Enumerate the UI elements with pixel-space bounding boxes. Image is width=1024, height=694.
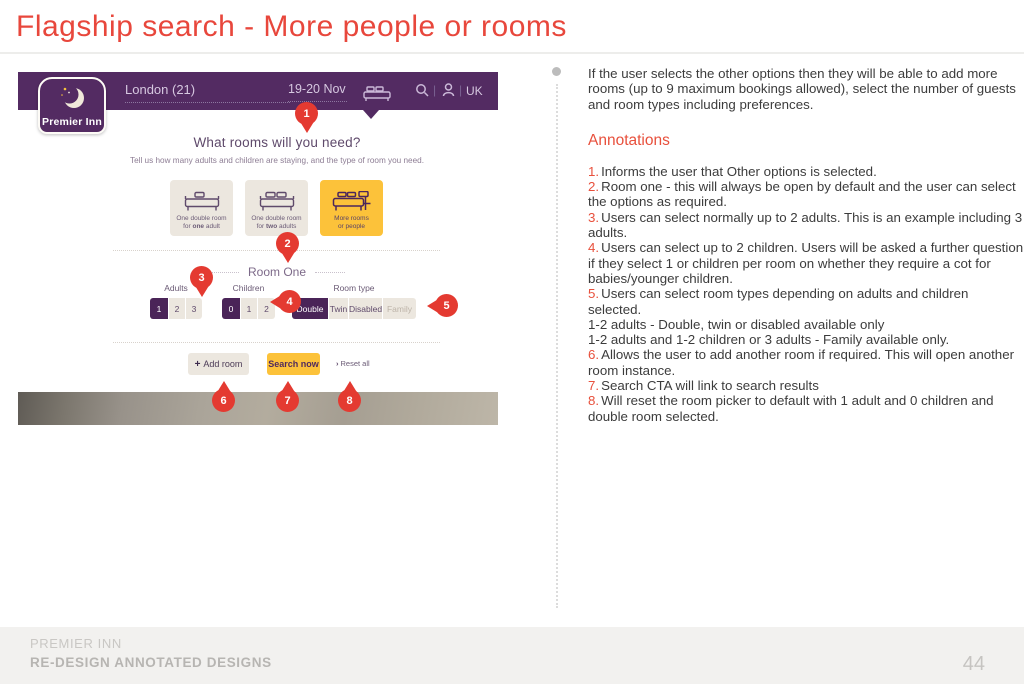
annotation-pin-1: 1 (295, 102, 318, 125)
footer-brand: PREMIER INN (30, 636, 122, 651)
intro-paragraph: If the user selects the other options th… (588, 66, 1024, 112)
annotation-item: 3.Users can select normally up to 2 adul… (588, 210, 1024, 241)
annotation-number: 4. (588, 240, 599, 255)
adults-option-2[interactable]: 2 (169, 298, 185, 319)
card-label: One double room for two adults (245, 215, 308, 231)
header-notch (363, 110, 379, 119)
section-divider (113, 342, 440, 343)
account-button[interactable] (442, 83, 455, 97)
annotation-item: 6.Allows the user to add another room if… (588, 347, 1024, 378)
annotation-item: 1-2 adults and 1-2 children or 3 adults … (588, 332, 1024, 347)
logo-wordmark: Premier Inn (40, 116, 104, 128)
country-selector[interactable]: UK (466, 84, 483, 98)
premier-inn-logo[interactable]: Premier Inn (38, 77, 106, 134)
annotation-item: 7.Search CTA will link to search results (588, 378, 1024, 393)
header-divider: | (459, 83, 462, 97)
title-divider (0, 52, 1024, 54)
room-type-label: Room type (292, 283, 416, 293)
single-bed-icon (170, 191, 233, 212)
annotation-item: 1-2 adults - Double, twin or disabled av… (588, 317, 1024, 332)
annotation-number: 2. (588, 179, 599, 194)
room-one-header: Room One (56, 265, 498, 279)
annotations-heading: Annotations (588, 132, 1024, 150)
annotation-number: 6. (588, 347, 599, 362)
section-divider (113, 250, 440, 251)
hero-photo-strip (18, 392, 498, 425)
annotation-pin-6: 6 (212, 389, 235, 412)
annotation-number: 8. (588, 393, 599, 408)
annotation-item: 5.Users can select room types depending … (588, 286, 1024, 317)
bullet-icon (552, 67, 561, 76)
add-room-button[interactable]: +Add room (188, 353, 249, 375)
annotation-number: 7. (588, 378, 599, 393)
annotation-item: 4.Users can select up to 2 children. Use… (588, 240, 1024, 286)
annotations-panel: If the user selects the other options th… (588, 66, 1024, 424)
mockup-subheading: Tell us how many adults and children are… (56, 156, 498, 165)
room-type-disabled[interactable]: Disabled (349, 298, 382, 319)
footer-subtitle: RE-DESIGN ANNOTATED DESIGNS (30, 655, 272, 670)
annotation-number: 3. (588, 210, 599, 225)
room-type-family[interactable]: Family (383, 298, 416, 319)
annotation-pin-5: 5 (435, 294, 458, 317)
annotation-number: 5. (588, 286, 599, 301)
plus-icon: + (195, 359, 201, 370)
double-bed-icon (245, 191, 308, 212)
annotation-item: 8.Will reset the room picker to default … (588, 393, 1024, 424)
search-icon (415, 83, 429, 97)
annotation-pin-8: 8 (338, 389, 361, 412)
page-title: Flagship search - More people or rooms (16, 10, 567, 44)
vertical-dotted-divider (556, 84, 558, 608)
children-option-0[interactable]: 0 (222, 298, 240, 319)
room-type-selector: Room type Double Twin Disabled Family (292, 283, 416, 319)
multi-bed-icon (320, 191, 383, 212)
room-type-twin[interactable]: Twin (329, 298, 348, 319)
annotation-pin-7: 7 (276, 389, 299, 412)
dash-ornament (315, 272, 345, 273)
annotated-design-page: { "page": { "title": "Flagship search - … (0, 0, 1024, 694)
location-field[interactable]: London (21) (125, 82, 290, 103)
annotation-item: 2.Room one - this will always be open by… (588, 179, 1024, 210)
children-selector: Children 0 1 2 (222, 283, 275, 319)
slide-footer: PREMIER INN RE-DESIGN ANNOTATED DESIGNS … (0, 627, 1024, 684)
card-label: One double room for one adult (170, 215, 233, 231)
dates-field[interactable]: 19-20 Nov (288, 82, 347, 102)
flagship-search-mockup: London (21) 19-20 Nov | (18, 72, 498, 425)
search-now-button[interactable]: Search now (267, 353, 320, 375)
mockup-heading: What rooms will you need? (56, 135, 498, 150)
rooms-menu-button[interactable] (360, 82, 394, 104)
adults-option-3[interactable]: 3 (186, 298, 202, 319)
reset-all-link[interactable]: ›Reset all (336, 359, 370, 368)
person-icon (442, 83, 455, 97)
dash-ornament (209, 272, 239, 273)
annotation-pin-4: 4 (278, 290, 301, 313)
children-option-1[interactable]: 1 (241, 298, 257, 319)
children-label: Children (222, 283, 275, 293)
page-number: 44 (963, 653, 985, 676)
annotation-number: 1. (588, 164, 599, 179)
card-label: More rooms or people (320, 215, 383, 231)
crescent-moon-icon (40, 83, 104, 113)
card-more-rooms[interactable]: More rooms or people (320, 180, 383, 236)
annotation-pin-3: 3 (190, 266, 213, 289)
bed-icon (360, 86, 394, 101)
adults-option-1[interactable]: 1 (150, 298, 168, 319)
chevron-right-icon: › (336, 359, 339, 368)
card-two-adults[interactable]: One double room for two adults (245, 180, 308, 236)
annotation-pin-2: 2 (276, 232, 299, 255)
header-divider: | (433, 83, 436, 97)
annotation-item: 1.Informs the user that Other options is… (588, 164, 1024, 179)
card-one-adult[interactable]: One double room for one adult (170, 180, 233, 236)
room-one-title: Room One (248, 265, 306, 279)
search-button[interactable] (415, 83, 429, 97)
